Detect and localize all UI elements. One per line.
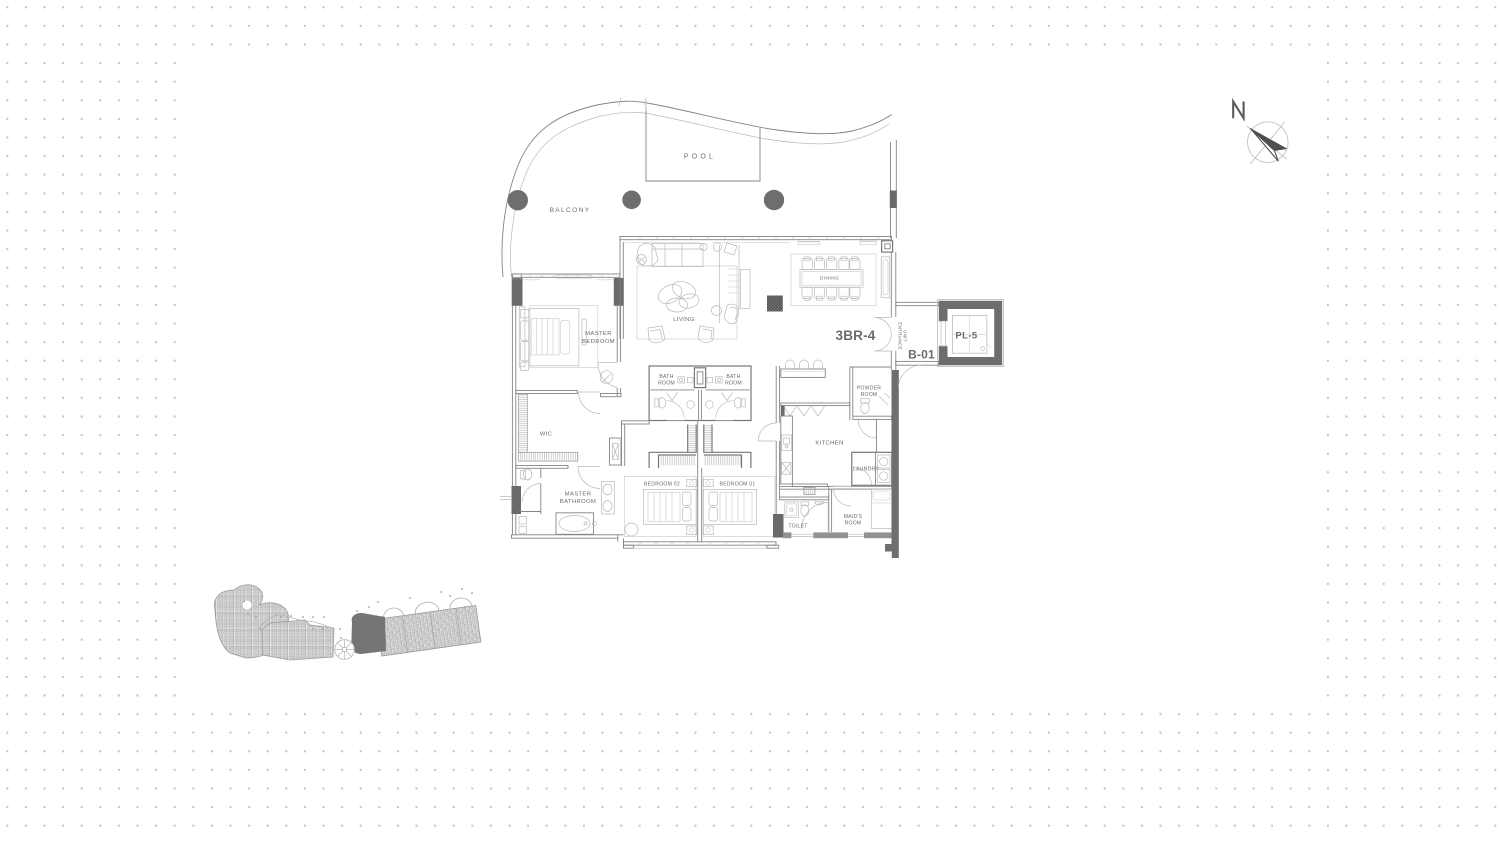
- svg-text:KITCHEN: KITCHEN: [815, 441, 843, 447]
- svg-text:MASTER: MASTER: [585, 331, 612, 337]
- svg-text:ROOM: ROOM: [658, 380, 675, 386]
- svg-text:POWDER: POWDER: [857, 385, 881, 391]
- svg-text:BALCONY: BALCONY: [550, 207, 591, 214]
- svg-text:MASTER: MASTER: [565, 492, 592, 498]
- svg-text:DINING: DINING: [820, 276, 839, 282]
- svg-text:LIVING: LIVING: [673, 317, 694, 323]
- svg-text:BATHROOM: BATHROOM: [560, 499, 596, 505]
- svg-text:ENTRANCE: ENTRANCE: [898, 322, 903, 350]
- svg-text:ROOM: ROOM: [861, 392, 878, 398]
- svg-text:WIC: WIC: [540, 432, 553, 438]
- svg-text:MAID'S: MAID'S: [844, 514, 863, 520]
- svg-text:POOL: POOL: [684, 154, 716, 161]
- svg-text:ROOM: ROOM: [725, 380, 742, 386]
- svg-text:BATH: BATH: [726, 374, 740, 380]
- svg-text:B-01: B-01: [908, 348, 935, 362]
- svg-text:TOILET: TOILET: [788, 523, 807, 529]
- svg-text:3BR-4: 3BR-4: [835, 328, 875, 343]
- svg-text:BEDROOM 01: BEDROOM 01: [720, 481, 756, 487]
- svg-text:PL-5: PL-5: [955, 331, 978, 342]
- svg-text:ROOM: ROOM: [845, 520, 862, 526]
- svg-text:BEDROOM 02: BEDROOM 02: [644, 481, 680, 487]
- svg-text:BEDROOM: BEDROOM: [582, 339, 615, 345]
- svg-text:LAUNDRY: LAUNDRY: [853, 466, 879, 472]
- svg-text:BATH: BATH: [659, 374, 673, 380]
